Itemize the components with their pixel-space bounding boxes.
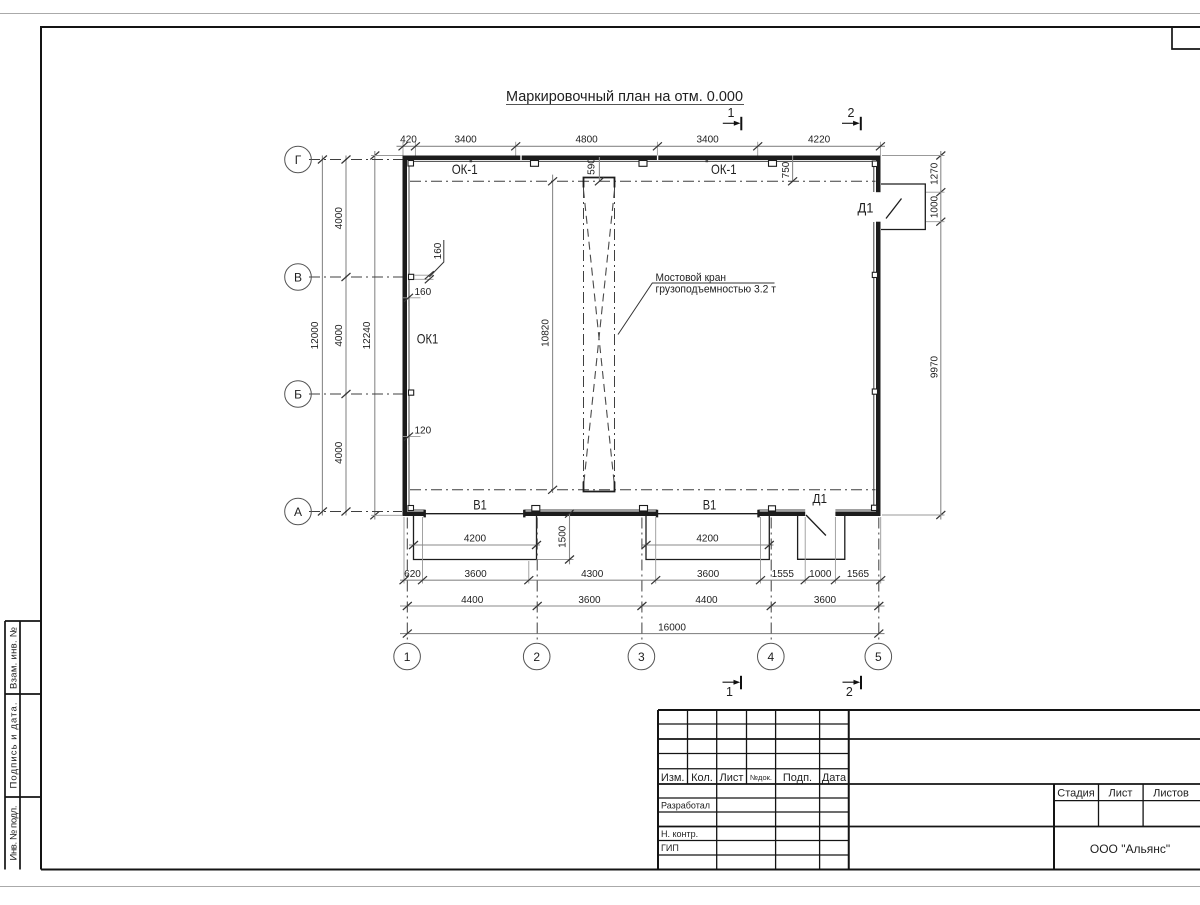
svg-text:4300: 4300	[581, 569, 604, 580]
svg-text:1: 1	[726, 685, 733, 699]
svg-text:4220: 4220	[808, 135, 831, 146]
svg-text:1270: 1270	[929, 162, 940, 185]
svg-text:ОК-1: ОК-1	[711, 161, 737, 177]
svg-text:Д1: Д1	[813, 491, 828, 506]
svg-text:Д1: Д1	[858, 200, 874, 216]
svg-text:4000: 4000	[334, 207, 345, 230]
svg-text:В: В	[294, 270, 302, 284]
svg-text:3600: 3600	[697, 569, 720, 580]
svg-text:9970: 9970	[929, 355, 940, 378]
svg-text:16000: 16000	[658, 622, 686, 633]
svg-text:4400: 4400	[461, 595, 484, 606]
svg-text:3400: 3400	[696, 135, 719, 146]
svg-text:1565: 1565	[847, 569, 870, 580]
svg-text:ООО "Альянс": ООО "Альянс"	[1090, 842, 1170, 856]
svg-text:В1: В1	[703, 497, 717, 513]
svg-text:Маркировочный план на отм. 0.0: Маркировочный план на отм. 0.000	[506, 89, 743, 105]
svg-text:Стадия: Стадия	[1057, 788, 1095, 800]
svg-text:5: 5	[875, 650, 882, 664]
svg-text:3600: 3600	[578, 595, 601, 606]
svg-text:1000: 1000	[809, 569, 832, 580]
svg-text:4400: 4400	[695, 595, 718, 606]
svg-text:Лист: Лист	[1109, 788, 1133, 800]
svg-text:Н. контр.: Н. контр.	[661, 829, 698, 839]
svg-text:12240: 12240	[362, 321, 373, 349]
svg-text:В1: В1	[473, 497, 487, 513]
svg-text:Разработал: Разработал	[661, 801, 710, 811]
svg-text:Листов: Листов	[1153, 788, 1189, 800]
svg-text:ОК-1: ОК-1	[452, 161, 478, 177]
svg-text:Мостовой кран: Мостовой кран	[656, 272, 727, 284]
svg-text:2: 2	[848, 106, 855, 120]
svg-text:620: 620	[404, 569, 421, 580]
svg-text:4: 4	[767, 650, 774, 664]
svg-text:Взам. инв. №: Взам. инв. №	[8, 627, 19, 689]
svg-text:Б: Б	[294, 387, 302, 401]
svg-text:750: 750	[781, 161, 792, 178]
svg-text:1: 1	[728, 106, 735, 120]
svg-text:2: 2	[846, 685, 853, 699]
svg-text:1: 1	[404, 650, 411, 664]
svg-text:3600: 3600	[814, 595, 837, 606]
svg-text:1555: 1555	[772, 569, 795, 580]
svg-text:3600: 3600	[464, 569, 487, 580]
svg-text:4000: 4000	[334, 441, 345, 464]
svg-text:Изм.: Изм.	[661, 772, 685, 784]
svg-text:2: 2	[533, 650, 540, 664]
svg-text:10820: 10820	[540, 319, 551, 347]
svg-text:Подп.: Подп.	[783, 772, 812, 784]
svg-text:4200: 4200	[464, 534, 487, 545]
svg-text:Подпись и дата.: Подпись и дата.	[8, 703, 19, 789]
svg-text:4000: 4000	[334, 324, 345, 347]
svg-text:12000: 12000	[310, 321, 321, 349]
svg-text:№док.: №док.	[750, 773, 772, 782]
svg-text:4800: 4800	[575, 135, 598, 146]
svg-text:120: 120	[415, 426, 432, 437]
svg-text:Лист: Лист	[720, 772, 744, 784]
svg-text:3400: 3400	[454, 135, 477, 146]
svg-text:3: 3	[638, 650, 645, 664]
svg-text:Инв. № подл.: Инв. № подл.	[8, 806, 19, 861]
svg-text:1500: 1500	[558, 525, 569, 548]
svg-text:1000: 1000	[929, 195, 940, 218]
svg-text:ГИП: ГИП	[661, 843, 679, 853]
svg-text:160: 160	[433, 242, 444, 259]
svg-text:Дата: Дата	[822, 772, 847, 784]
svg-text:420: 420	[400, 135, 417, 146]
svg-text:Кол.: Кол.	[691, 772, 713, 784]
svg-text:590: 590	[586, 158, 597, 175]
svg-text:Г: Г	[295, 153, 302, 167]
svg-text:ОК1: ОК1	[417, 331, 439, 347]
svg-text:А: А	[294, 505, 302, 519]
svg-text:4200: 4200	[696, 534, 719, 545]
svg-text:грузоподъемностью 3.2 т: грузоподъемностью 3.2 т	[656, 284, 777, 296]
svg-text:160: 160	[415, 287, 432, 298]
